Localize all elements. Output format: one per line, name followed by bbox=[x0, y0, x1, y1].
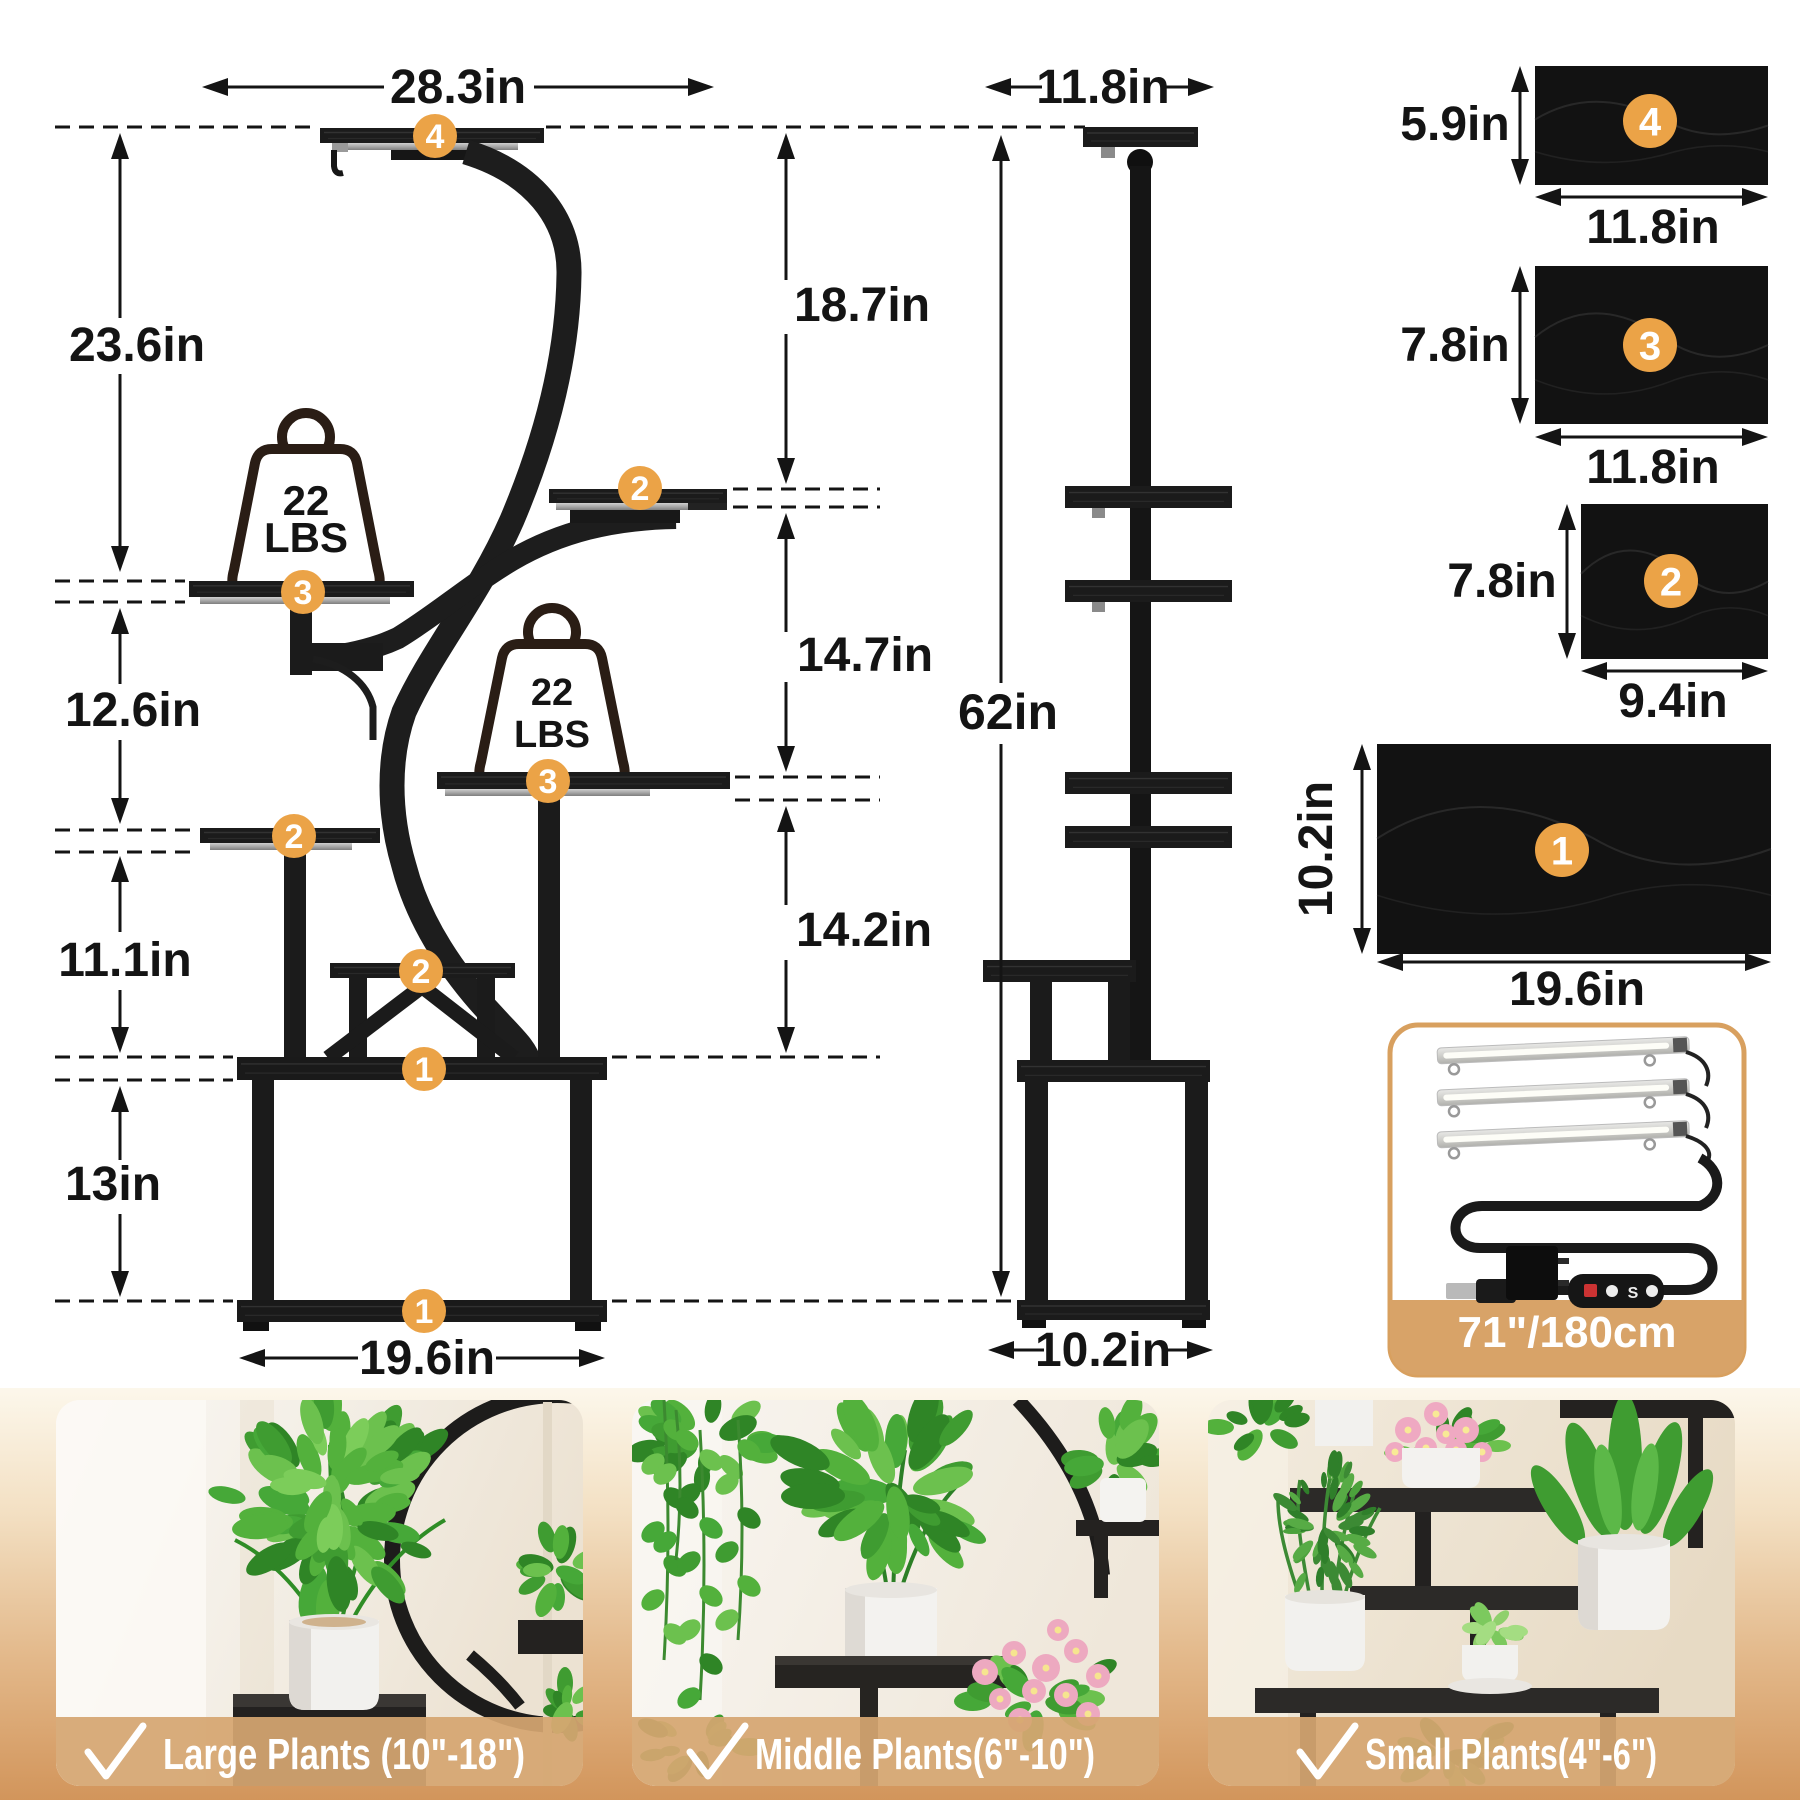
svg-text:3: 3 bbox=[539, 763, 558, 801]
svg-text:9.4in: 9.4in bbox=[1618, 675, 1727, 728]
svg-text:S: S bbox=[1628, 1285, 1639, 1302]
svg-text:22: 22 bbox=[531, 672, 573, 714]
svg-text:10.2in: 10.2in bbox=[1035, 1324, 1171, 1377]
svg-text:19.6in: 19.6in bbox=[1509, 963, 1645, 1016]
svg-text:Middle Plants(6"-10"): Middle Plants(6"-10") bbox=[755, 1730, 1095, 1779]
svg-text:14.7in: 14.7in bbox=[797, 629, 933, 682]
svg-text:5.9in: 5.9in bbox=[1400, 98, 1509, 151]
svg-text:11.8in: 11.8in bbox=[1586, 201, 1719, 254]
svg-text:LBS: LBS bbox=[514, 714, 590, 756]
svg-text:2: 2 bbox=[1660, 560, 1682, 604]
svg-text:7.8in: 7.8in bbox=[1400, 319, 1509, 372]
svg-text:12.6in: 12.6in bbox=[65, 684, 201, 737]
svg-text:Large Plants (10"-18"): Large Plants (10"-18") bbox=[163, 1730, 525, 1779]
svg-text:3: 3 bbox=[294, 574, 313, 612]
svg-text:11.8in: 11.8in bbox=[1036, 61, 1169, 114]
svg-text:18.7in: 18.7in bbox=[794, 279, 930, 332]
svg-text:11.1in: 11.1in bbox=[58, 934, 191, 987]
svg-text:4: 4 bbox=[1639, 100, 1662, 144]
svg-text:28.3in: 28.3in bbox=[390, 61, 526, 114]
svg-text:4: 4 bbox=[426, 118, 445, 156]
svg-text:Small Plants(4"-6"): Small Plants(4"-6") bbox=[1365, 1730, 1657, 1779]
svg-text:LBS: LBS bbox=[264, 514, 348, 561]
svg-text:3: 3 bbox=[1639, 324, 1661, 368]
svg-text:62in: 62in bbox=[958, 684, 1058, 740]
svg-text:14.2in: 14.2in bbox=[796, 904, 932, 957]
svg-text:1: 1 bbox=[1551, 829, 1573, 873]
svg-text:1: 1 bbox=[415, 1293, 434, 1331]
svg-text:11.8in: 11.8in bbox=[1586, 441, 1719, 494]
svg-text:1: 1 bbox=[415, 1051, 434, 1089]
svg-text:2: 2 bbox=[285, 818, 304, 856]
svg-text:23.6in: 23.6in bbox=[69, 319, 205, 372]
svg-text:19.6in: 19.6in bbox=[359, 1332, 495, 1385]
svg-text:71"/180cm: 71"/180cm bbox=[1457, 1308, 1676, 1357]
svg-text:2: 2 bbox=[631, 470, 650, 508]
svg-text:2: 2 bbox=[412, 953, 431, 991]
svg-text:7.8in: 7.8in bbox=[1447, 555, 1556, 608]
svg-text:10.2in: 10.2in bbox=[1290, 781, 1343, 917]
svg-text:13in: 13in bbox=[65, 1158, 161, 1211]
